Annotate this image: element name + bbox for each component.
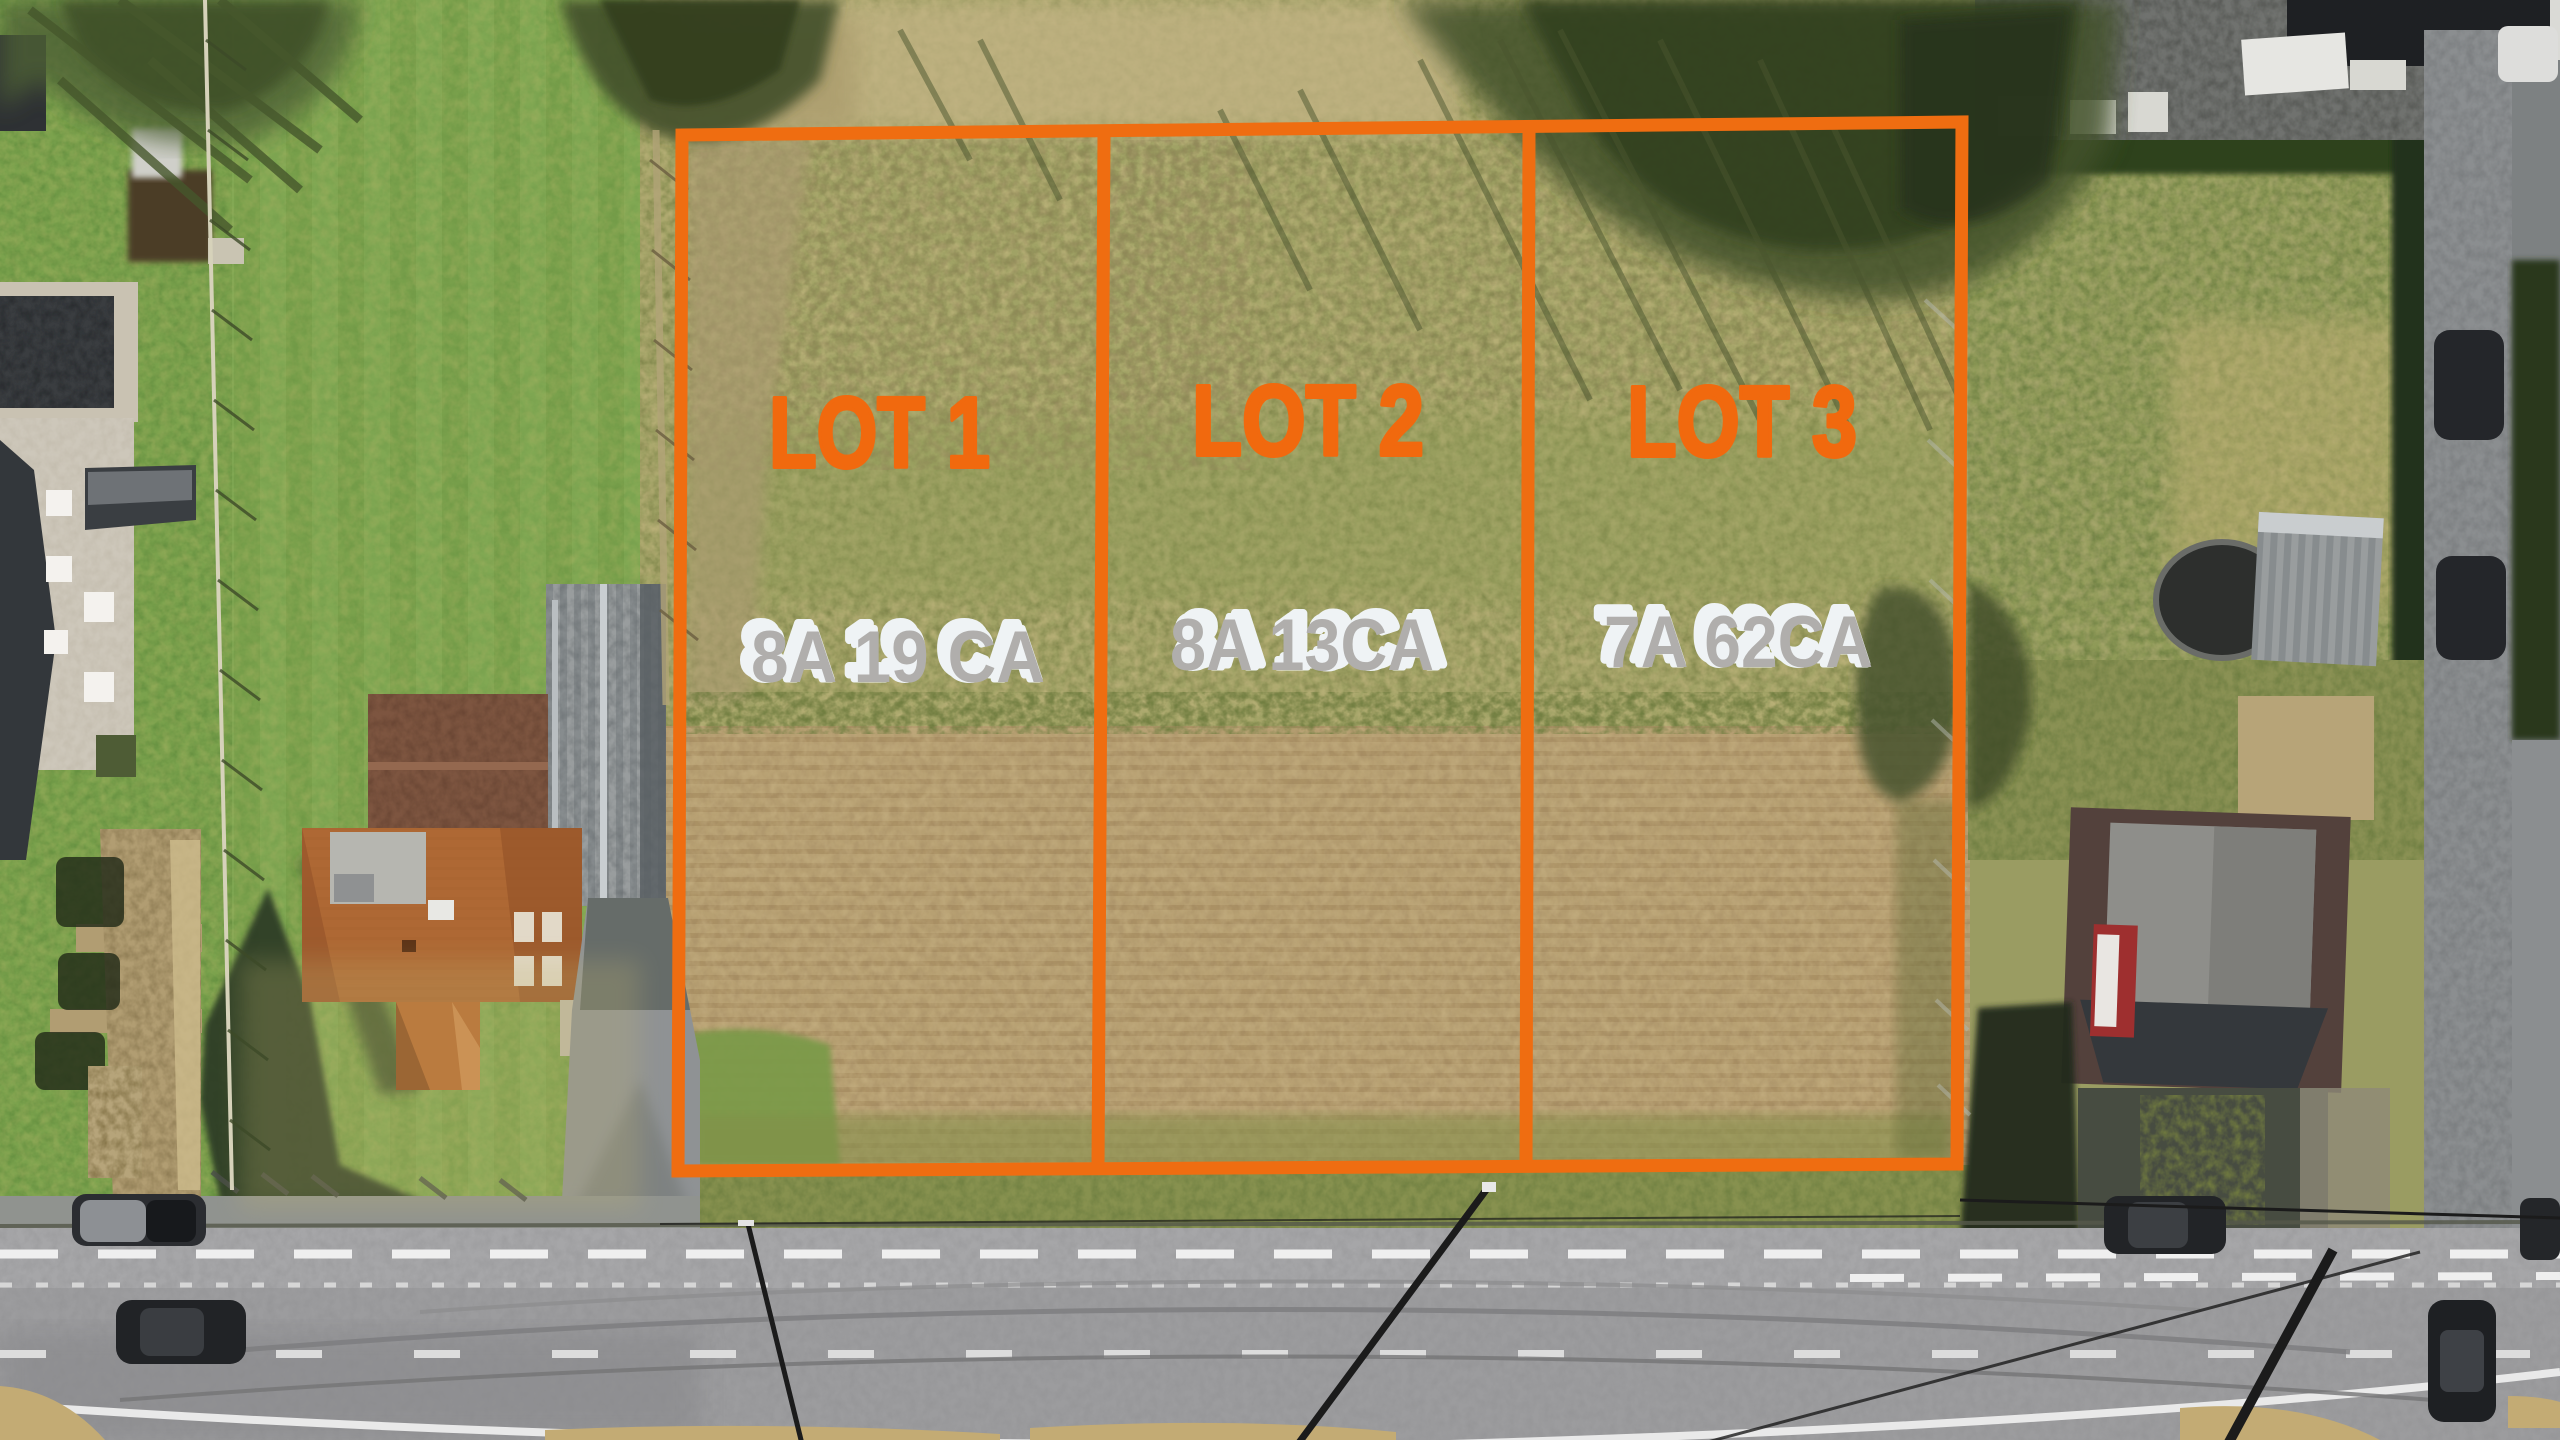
- svg-text:LOT 3: LOT 3: [1627, 366, 1857, 478]
- svg-text:LOT 1: LOT 1: [769, 377, 990, 489]
- svg-text:LOT 2: LOT 2: [1192, 365, 1424, 477]
- svg-text:7A 62CA: 7A 62CA: [1604, 602, 1873, 683]
- svg-text:8A 13CA: 8A 13CA: [1170, 605, 1434, 686]
- svg-text:8A 19 CA: 8A 19 CA: [751, 617, 1045, 698]
